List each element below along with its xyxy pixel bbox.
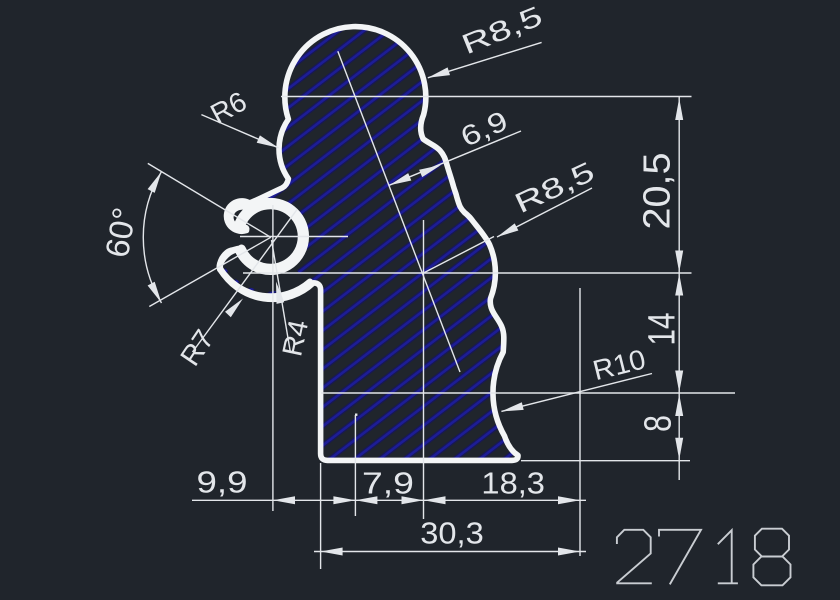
- svg-text:18,3: 18,3: [481, 466, 545, 501]
- svg-text:9,9: 9,9: [197, 465, 248, 500]
- svg-text:20,5: 20,5: [636, 153, 678, 230]
- svg-text:14: 14: [641, 313, 683, 346]
- svg-text:7,9: 7,9: [362, 466, 414, 501]
- svg-text:30,3: 30,3: [420, 516, 484, 551]
- svg-text:8: 8: [637, 415, 679, 432]
